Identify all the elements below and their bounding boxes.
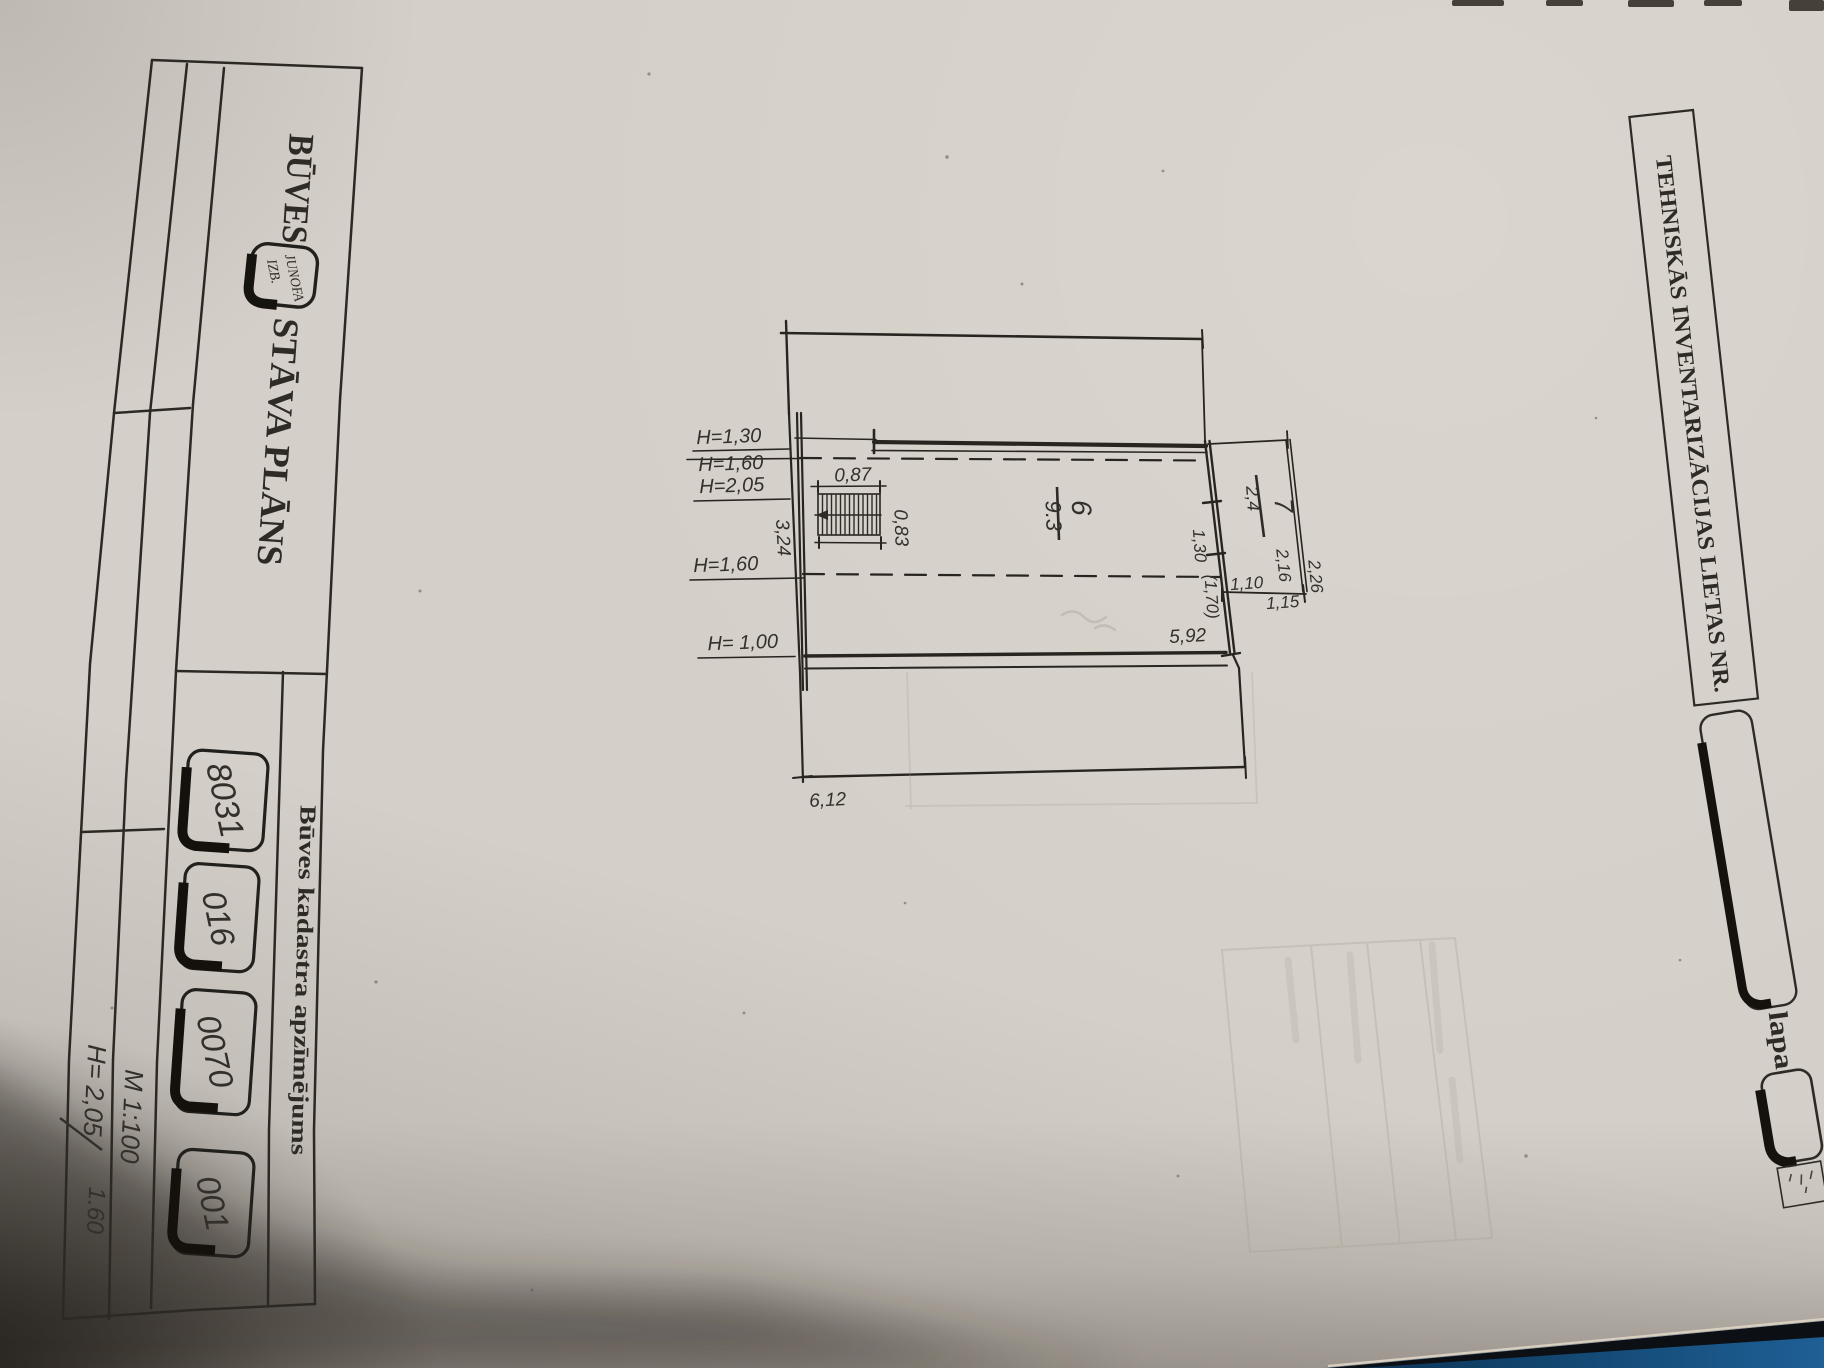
svg-text:1.60: 1.60 bbox=[81, 1186, 110, 1235]
svg-text:6,12: 6,12 bbox=[809, 789, 847, 812]
svg-text:M 1:100: M 1:100 bbox=[115, 1069, 150, 1165]
svg-text:2,26: 2,26 bbox=[1304, 558, 1327, 594]
svg-text:(1,70): (1,70) bbox=[1200, 574, 1222, 620]
svg-text:H=2,05: H=2,05 bbox=[699, 474, 766, 498]
svg-text:2,4: 2,4 bbox=[1242, 484, 1264, 511]
svg-text:H=1,60: H=1,60 bbox=[693, 553, 759, 577]
svg-text:1,30: 1,30 bbox=[1189, 528, 1210, 563]
svg-text:2,16: 2,16 bbox=[1272, 547, 1295, 583]
svg-text:H=1,60: H=1,60 bbox=[698, 452, 764, 476]
svg-text:1,10: 1,10 bbox=[1229, 573, 1264, 594]
svg-text:H= 1,00: H= 1,00 bbox=[707, 631, 778, 655]
svg-text:6: 6 bbox=[1066, 499, 1098, 516]
svg-text:3,24: 3,24 bbox=[771, 519, 794, 557]
svg-text:H=1,30: H=1,30 bbox=[696, 425, 762, 449]
svg-text:5,92: 5,92 bbox=[1169, 625, 1207, 648]
svg-text:H= 2,05: H= 2,05 bbox=[78, 1044, 113, 1138]
svg-text:9.3: 9.3 bbox=[1040, 500, 1066, 532]
svg-text:0,87: 0,87 bbox=[834, 464, 873, 486]
svg-text:0,83: 0,83 bbox=[889, 509, 911, 547]
svg-text:BŪVES: BŪVES bbox=[274, 133, 322, 246]
svg-text:1,15: 1,15 bbox=[1265, 592, 1300, 613]
